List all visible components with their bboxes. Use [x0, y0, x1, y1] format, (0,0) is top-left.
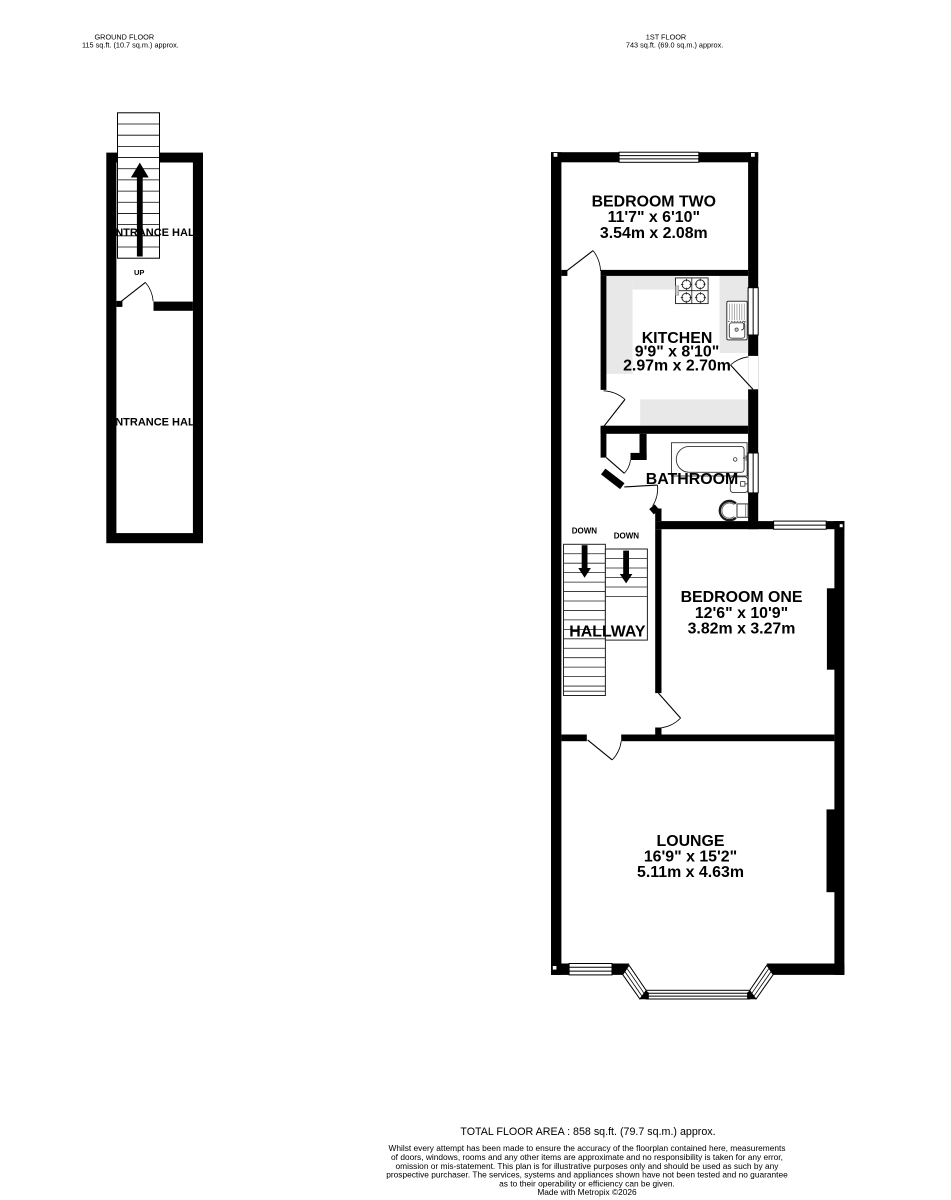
svg-text:BEDROOM TWO: BEDROOM TWO [592, 194, 716, 211]
svg-text:HALLWAY: HALLWAY [569, 624, 646, 641]
svg-text:BATHROOM: BATHROOM [646, 471, 738, 488]
svg-text:5.11m x 4.63m: 5.11m x 4.63m [637, 864, 744, 881]
svg-text:UP: UP [134, 268, 144, 277]
svg-text:3.82m x 3.27m: 3.82m x 3.27m [688, 620, 796, 637]
svg-text:LOUNGE: LOUNGE [657, 833, 725, 850]
svg-text:DOWN: DOWN [572, 526, 598, 535]
svg-text:ENTRANCE HALL: ENTRANCE HALL [108, 417, 202, 429]
svg-text:DOWN: DOWN [614, 531, 640, 540]
svg-text:115 sq.ft. (10.7 sq.m.) approx: 115 sq.ft. (10.7 sq.m.) approx. [82, 41, 179, 50]
svg-text:743 sq.ft. (69.0 sq.m.) approx: 743 sq.ft. (69.0 sq.m.) approx. [626, 41, 723, 50]
svg-text:ENTRANCE HALL: ENTRANCE HALL [108, 227, 202, 239]
svg-text:11'7" x 6'10": 11'7" x 6'10" [608, 209, 700, 226]
svg-text:Made with Metropix ©2026: Made with Metropix ©2026 [537, 1187, 637, 1197]
svg-text:2.97m x 2.70m: 2.97m x 2.70m [623, 358, 731, 375]
svg-text:BEDROOM ONE: BEDROOM ONE [681, 589, 803, 606]
svg-text:3.54m x 2.08m: 3.54m x 2.08m [600, 225, 708, 242]
svg-text:TOTAL FLOOR AREA : 858 sq.ft.: TOTAL FLOOR AREA : 858 sq.ft. (79.7 sq.m… [460, 1126, 715, 1138]
